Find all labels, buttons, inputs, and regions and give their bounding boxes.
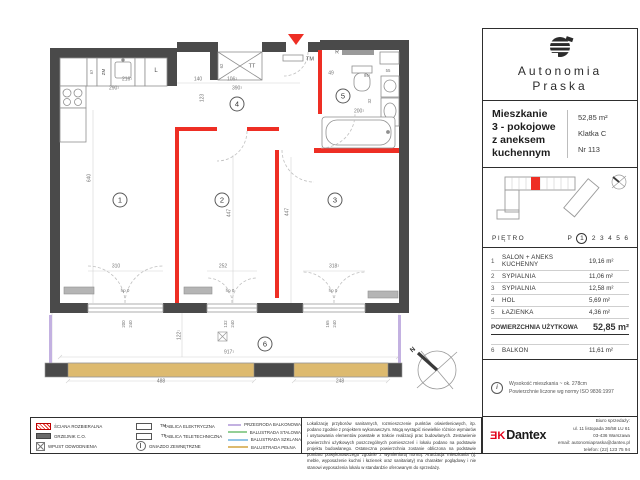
legend-label: ŚCIANA ROZBIERALNA <box>54 424 102 429</box>
legend-label: WPUST ODWODNIENIA <box>48 444 97 449</box>
bathroom-radiator <box>342 50 374 55</box>
dantex-logo: ƎK Dantex <box>490 428 546 442</box>
legend-label: TABLICA TELETECHNICZNA <box>164 434 222 439</box>
glass-railing-swatch <box>228 439 248 441</box>
room-num: 4 <box>491 297 502 304</box>
dim-label: 62 <box>220 64 224 69</box>
dim-label: 248 <box>336 380 344 385</box>
dim-label: 94¹ <box>364 74 370 78</box>
entrance-marker <box>288 34 304 45</box>
electrical-panel-label: TM <box>306 57 314 63</box>
total-area-value: 52,85 m² <box>593 322 629 332</box>
dim-label: 640 <box>88 174 93 182</box>
table-row: 4 HOL 5,69 m² <box>491 295 629 307</box>
balcony-partition-swatch <box>228 424 241 426</box>
info-icon: i <box>491 382 503 394</box>
dim-label: 49 <box>328 72 334 77</box>
floor-numbers: P 1 2 3 4 5 6 <box>568 233 628 244</box>
note-line2: Powierzchnie liczone wg normy ISO 9836:1… <box>509 388 614 397</box>
balustrade <box>45 363 402 377</box>
table-row: 3 SYPIALNIA 12,58 m² <box>491 283 629 295</box>
address-line: telefon: (22) 123 75 94 <box>558 446 630 453</box>
apartment-title: Mieszkanie 3 - pokojowe z aneksem kuchen… <box>483 108 567 161</box>
brand-name-line1: Autonomia <box>518 64 602 79</box>
footer-section: ƎK Dantex Biuro sprzedaży: ul. 11 listop… <box>483 417 637 453</box>
autonomia-logo-icon <box>545 35 575 61</box>
electrical-panel-box <box>283 55 303 61</box>
note-text: Wysokość mieszkania ~ ok. 278cm Powierzc… <box>509 380 614 397</box>
apartment-title-line: Mieszkanie <box>492 108 567 121</box>
apartment-title-line: z aneksem <box>492 134 567 147</box>
unit-location-marker <box>531 177 540 190</box>
legend-label: GRZEJNIK C.O. <box>54 434 86 439</box>
apartment-info-section: Mieszkanie 3 - pokojowe z aneksem kuchen… <box>483 101 637 169</box>
dim-label: 132 <box>224 320 228 327</box>
balcony-partition-right <box>398 315 401 363</box>
room-table-section: 1 SALON + ANEKS KUCHENNY 19,16 m² 2 SYPI… <box>483 248 637 360</box>
dim-label: 216¹ <box>122 78 132 83</box>
sales-office-address: Biuro sprzedaży: ul. 11 listopada 36/58 … <box>558 417 630 453</box>
floor-option: 3 <box>600 235 604 242</box>
outdoor-socket-icon <box>136 441 146 451</box>
apartment-title-line: kuchennym <box>492 147 567 160</box>
room-name: SYPIALNIA <box>502 285 589 292</box>
floor-option: 2 <box>592 235 596 242</box>
room-name: SYPIALNIA <box>502 273 589 280</box>
dim-label: 165 <box>326 320 330 327</box>
dantex-logo-icon: ƎK <box>490 430 505 442</box>
drain-icon <box>36 442 45 451</box>
washing-machine <box>381 76 399 97</box>
legend-item: GRZEJNIK C.O. <box>36 431 131 441</box>
dim-label: 310 <box>112 265 120 270</box>
room-num: 2 <box>491 273 502 280</box>
total-area-row: POWIERZCHNIA UŻYTKOWA 52,85 m² <box>491 319 629 335</box>
room-area: 11,61 m² <box>589 347 629 354</box>
electrical-panel-icon: TM <box>136 423 152 430</box>
legend-item: BALUSTRADA PEŁNA <box>228 444 301 452</box>
table-row: 1 SALON + ANEKS KUCHENNY 19,16 m² <box>491 252 629 271</box>
legend-item: WPUST ODWODNIENIA <box>36 441 131 451</box>
address-line: 03-436 Warszawa <box>558 432 630 439</box>
floor-selector-row: PIĘTRO P 1 2 3 4 5 6 <box>483 231 637 245</box>
kitchen-counter <box>60 58 167 142</box>
legend-label: BALUSTRADA STALOWA <box>250 430 301 435</box>
window-sill-label: hp 0 <box>329 289 338 294</box>
dim-label: 240 <box>333 320 337 327</box>
apartment-number: Nr 113 <box>578 142 637 158</box>
room-area: 12,58 m² <box>589 285 629 292</box>
steel-railing-swatch <box>228 431 247 433</box>
brand-section: Autonomia Praska <box>483 29 637 101</box>
window-sill-label: hp 0 <box>226 289 235 294</box>
compass-icon <box>417 351 457 389</box>
bathroom-shelf <box>380 52 399 64</box>
floor-label: PIĘTRO <box>492 235 525 242</box>
room-name: HOL <box>502 297 589 304</box>
disclaimer-text: Lokalizację przyborów sanitarnych, rozmi… <box>307 421 476 471</box>
room-name: SALON + ANEKS KUCHENNY <box>502 254 589 268</box>
disclaimer-box: Lokalizację przyborów sanitarnych, rozmi… <box>301 418 481 453</box>
legend-item: BALUSTRADA STALOWA <box>228 429 301 437</box>
toilet <box>352 66 372 91</box>
legend-item: ŚCIANA ROZBIERALNA <box>36 421 131 431</box>
note-line1: Wysokość mieszkania ~ ok. 278cm <box>509 380 614 389</box>
address-line: ul. 11 listopada 36/58 LU 61 <box>558 425 630 432</box>
room-name: BALKON <box>502 347 589 354</box>
room-number-5: 5 <box>336 89 351 104</box>
dim-label: 200¹ <box>354 110 364 115</box>
stove <box>60 86 86 108</box>
legend-label: BALUSTRADA SZKLANA <box>251 437 301 442</box>
floorplan-sheet: { "colors": { "wall": "#4a4a4a", "remova… <box>0 0 640 480</box>
room-name: ŁAZIENKA <box>502 309 589 316</box>
dim-label: 106¹ <box>227 78 237 83</box>
legend-item: PRZEGRODA BALKONOWA <box>228 421 301 429</box>
balcony-partition-left <box>49 315 52 363</box>
room-area: 4,36 m² <box>589 309 629 316</box>
radiator-icon <box>36 433 51 439</box>
room-num: 6 <box>491 347 502 354</box>
dim-label: 290¹ <box>109 87 119 92</box>
panel-tag: TM <box>160 423 166 428</box>
total-area-label: POWIERZCHNIA UŻYTKOWA <box>491 324 578 331</box>
dim-label: 318¹ <box>329 265 339 270</box>
legend-item: TM TABLICA ELEKTRYCZNA <box>136 421 223 431</box>
panel-tag: TT <box>161 433 166 438</box>
legend-label: BALUSTRADA PEŁNA <box>251 445 296 450</box>
table-row: 2 SYPIALNIA 11,06 m² <box>491 271 629 283</box>
address-line: email: autonomiapraska@dantex.pl <box>558 439 630 446</box>
teletech-panel-icon: TT <box>136 433 152 440</box>
dim-label: 200 <box>122 320 126 327</box>
apartment-title-line: 3 - pokojowe <box>492 121 567 134</box>
building-site-map <box>483 169 637 231</box>
dim-label: 447 <box>286 208 291 216</box>
info-panel: Autonomia Praska Mieszkanie 3 - pokojowe… <box>482 28 638 454</box>
windows <box>88 304 365 312</box>
table-row: 5 ŁAZIENKA 4,36 m² <box>491 307 629 319</box>
dantex-logo-text: Dantex <box>506 428 546 442</box>
cabinet-57-label: 57 <box>90 70 94 74</box>
dim-label: 240 <box>231 320 235 327</box>
legend-column-3: PRZEGRODA BALKONOWA BALUSTRADA STALOWA B… <box>223 418 301 453</box>
removable-wall-icon <box>36 423 51 430</box>
dim-label: 55 <box>386 69 391 73</box>
map-compass-icon <box>612 175 626 189</box>
legend-strip: ŚCIANA ROZBIERALNA GRZEJNIK C.O. WPUST O… <box>30 417 482 454</box>
legend-item: GNIAZDO ZEWNĘTRZNE <box>136 441 223 451</box>
dim-label: 32 <box>368 99 372 104</box>
dim-label: 122¹ <box>178 330 183 340</box>
room-area: 11,06 m² <box>589 273 629 280</box>
bathtub <box>322 117 395 148</box>
room-num: 5 <box>491 309 502 316</box>
legend-label: PRZEGRODA BALKONOWA <box>244 422 301 427</box>
dishwasher-label: ZM <box>102 69 107 76</box>
room-number-3: 3 <box>328 193 343 208</box>
dim-label: 488 <box>157 380 165 385</box>
room-area: 19,16 m² <box>589 258 629 265</box>
room-number-1: 1 <box>113 193 128 208</box>
apartment-meta: 52,85 m² Klatka C Nr 113 <box>567 110 637 157</box>
apartment-staircase: Klatka C <box>578 126 637 142</box>
floor-option: 6 <box>624 235 628 242</box>
room-number-2: 2 <box>215 193 230 208</box>
legend-label: TABLICA ELEKTRYCZNA <box>164 424 215 429</box>
note-section: i Wysokość mieszkania ~ ok. 278cm Powier… <box>483 360 637 418</box>
dim-label: 917¹ <box>224 351 234 356</box>
dim-label: 140 <box>194 78 202 83</box>
legend-column-1: ŚCIANA ROZBIERALNA GRZEJNIK C.O. WPUST O… <box>31 418 131 453</box>
dim-label: 252 <box>219 265 227 270</box>
dim-label: 240 <box>129 320 133 327</box>
room-num: 3 <box>491 285 502 292</box>
legend-column-2: TM TABLICA ELEKTRYCZNA TT TABLICA TELETE… <box>131 418 223 453</box>
floor-prefix: P <box>568 235 572 242</box>
room-number-4: 4 <box>230 97 245 112</box>
room-num: 1 <box>491 258 502 265</box>
apartment-area: 52,85 m² <box>578 110 637 126</box>
dim-label: 123 <box>201 94 206 102</box>
room-area: 5,69 m² <box>589 297 629 304</box>
floor-option: 5 <box>616 235 620 242</box>
floor-current: 1 <box>576 233 587 244</box>
legend-item: TT TABLICA TELETECHNICZNA <box>136 431 223 441</box>
dim-label: 447 <box>228 209 233 217</box>
teletech-panel-label: TT <box>249 64 256 70</box>
drain-icon <box>218 332 227 341</box>
solid-railing-swatch <box>228 446 248 448</box>
balcony-row: 6 BALKON 11,61 m² <box>491 344 629 356</box>
floor-option: 4 <box>608 235 612 242</box>
fridge-label: L <box>154 68 157 74</box>
legend-label: GNIAZDO ZEWNĘTRZNE <box>149 444 201 449</box>
brand-name-line2: Praska <box>518 79 602 94</box>
address-line: Biuro sprzedaży: <box>558 417 630 424</box>
window-sill-label: hp 0 <box>121 289 130 294</box>
radiator-r-label: R <box>335 51 339 56</box>
legend-item: BALUSTRADA SZKLANA <box>228 436 301 444</box>
dim-label: 390¹ <box>232 87 242 92</box>
room-number-6: 6 <box>258 337 273 352</box>
site-map-section: PIĘTRO P 1 2 3 4 5 6 <box>483 168 637 248</box>
